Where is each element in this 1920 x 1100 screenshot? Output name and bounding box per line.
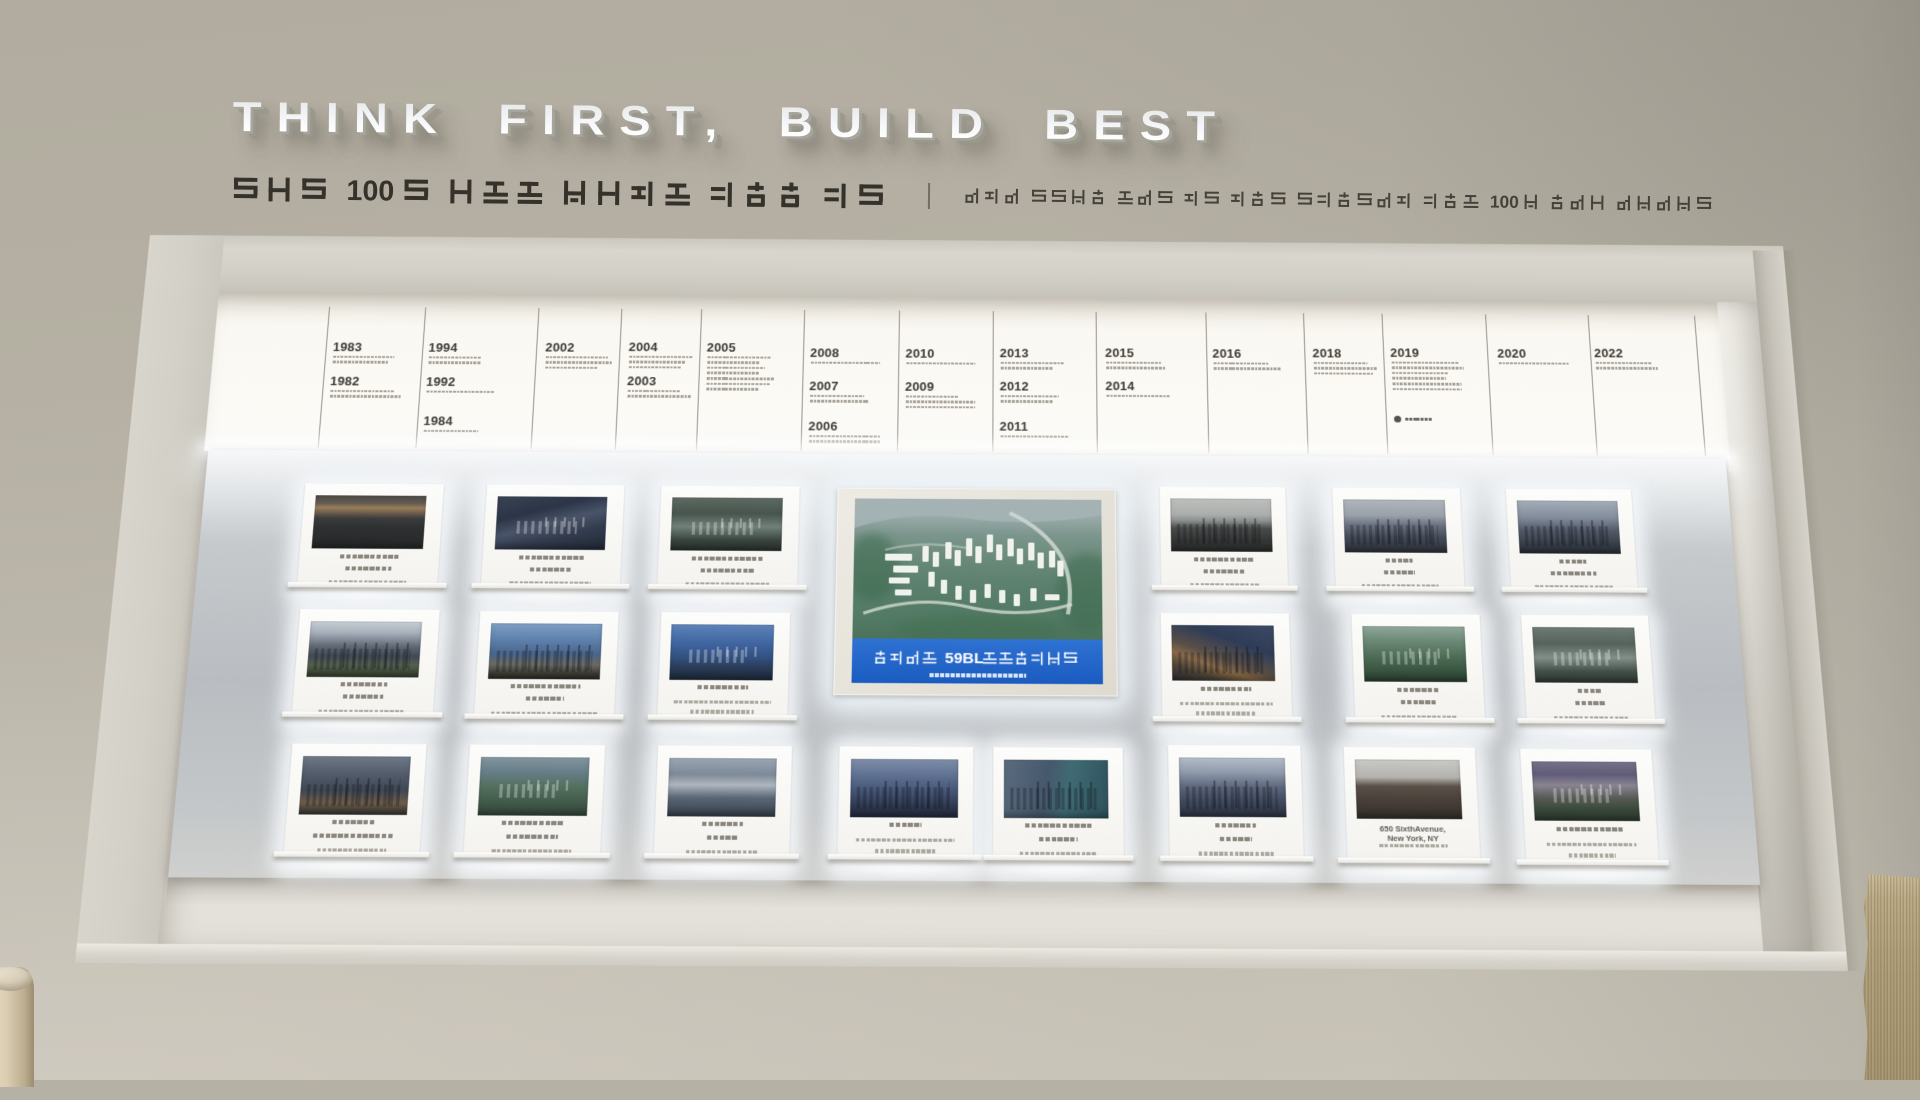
svg-text:59BL: 59BL (945, 651, 984, 666)
